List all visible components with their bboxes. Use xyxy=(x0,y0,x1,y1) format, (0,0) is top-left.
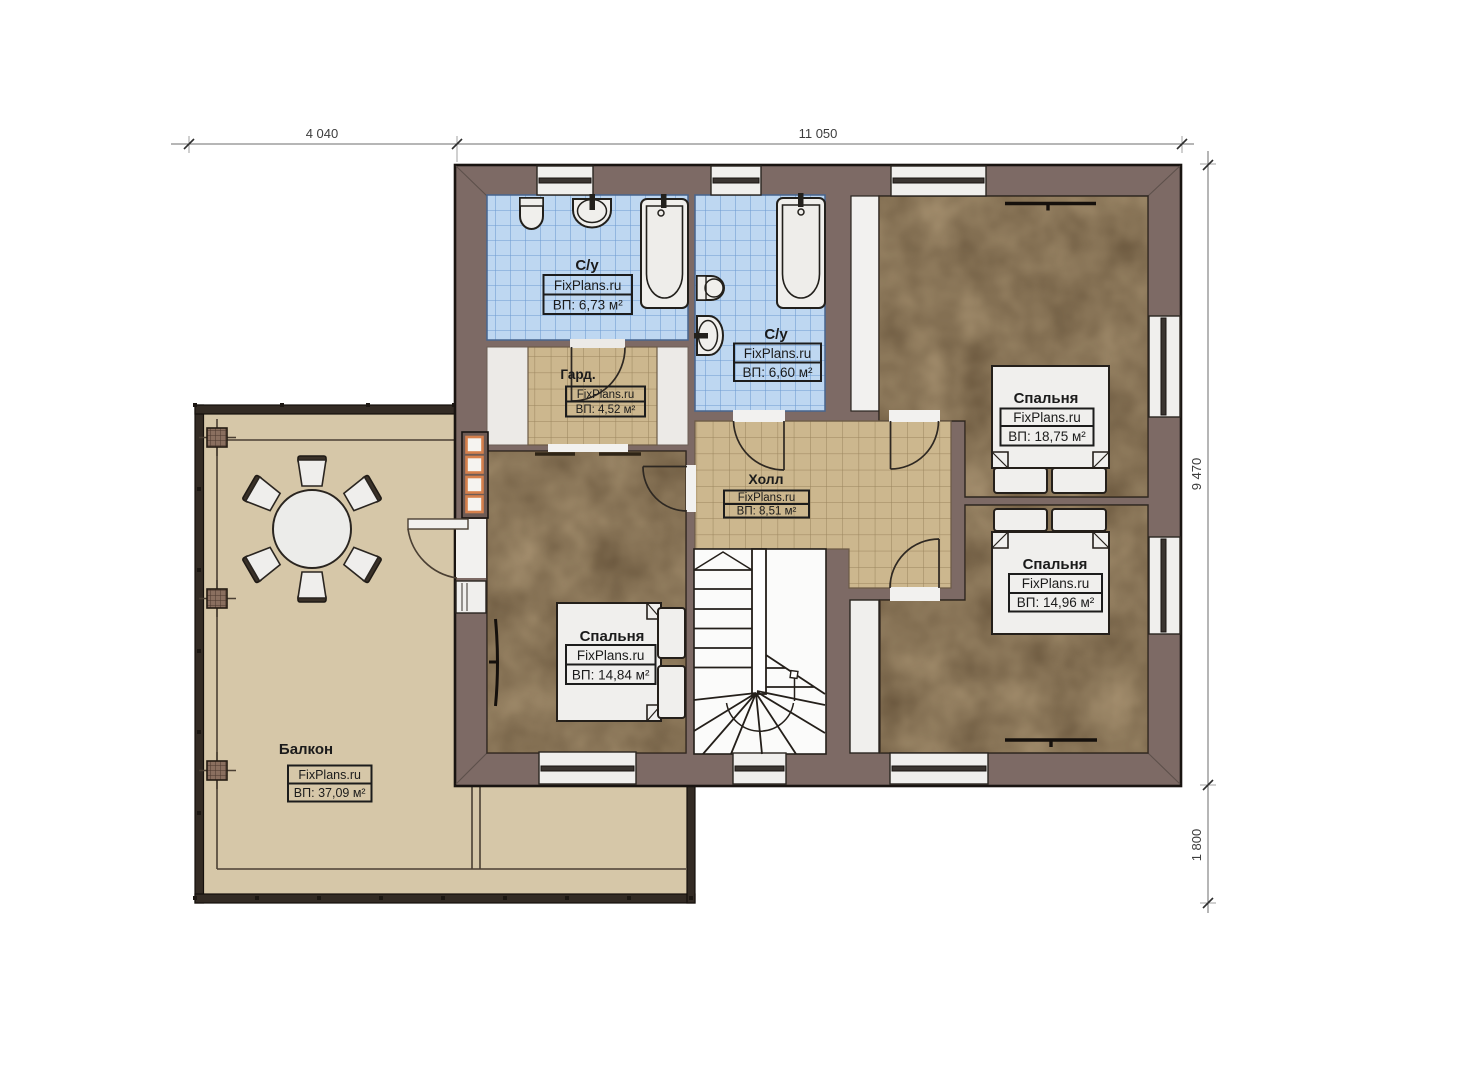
svg-text:ВП: 8,51 м²: ВП: 8,51 м² xyxy=(737,506,797,518)
svg-text:ВП: 14,84 м²: ВП: 14,84 м² xyxy=(572,668,650,683)
svg-text:Холл: Холл xyxy=(748,471,783,487)
svg-text:FixPlans.ru: FixPlans.ru xyxy=(554,278,622,293)
svg-text:FixPlans.ru: FixPlans.ru xyxy=(738,492,796,504)
svg-text:ВП: 4,52 м²: ВП: 4,52 м² xyxy=(576,404,636,416)
svg-text:ВП: 18,75 м²: ВП: 18,75 м² xyxy=(1008,429,1086,444)
svg-text:С/у: С/у xyxy=(575,257,599,274)
svg-text:Гард.: Гард. xyxy=(560,367,595,382)
svg-text:FixPlans.ru: FixPlans.ru xyxy=(577,648,645,663)
svg-text:FixPlans.ru: FixPlans.ru xyxy=(298,768,361,782)
svg-text:ВП: 6,60 м²: ВП: 6,60 м² xyxy=(742,365,813,380)
svg-text:FixPlans.ru: FixPlans.ru xyxy=(1013,410,1081,425)
svg-text:Спальня: Спальня xyxy=(1023,556,1088,573)
svg-text:Спальня: Спальня xyxy=(1014,390,1079,407)
svg-text:9 470: 9 470 xyxy=(1189,458,1204,491)
svg-text:ВП: 37,09 м²: ВП: 37,09 м² xyxy=(294,786,366,800)
svg-text:4 040: 4 040 xyxy=(306,126,339,141)
svg-text:Спальня: Спальня xyxy=(580,628,645,645)
svg-text:FixPlans.ru: FixPlans.ru xyxy=(744,346,812,361)
svg-text:1 800: 1 800 xyxy=(1189,829,1204,862)
svg-text:С/у: С/у xyxy=(764,326,788,343)
svg-text:Балкон: Балкон xyxy=(279,741,333,758)
svg-text:ВП: 14,96 м²: ВП: 14,96 м² xyxy=(1017,595,1095,610)
svg-text:FixPlans.ru: FixPlans.ru xyxy=(577,389,635,401)
svg-text:ВП: 6,73 м²: ВП: 6,73 м² xyxy=(553,298,624,313)
svg-text:11 050: 11 050 xyxy=(799,126,838,141)
svg-text:FixPlans.ru: FixPlans.ru xyxy=(1022,576,1090,591)
